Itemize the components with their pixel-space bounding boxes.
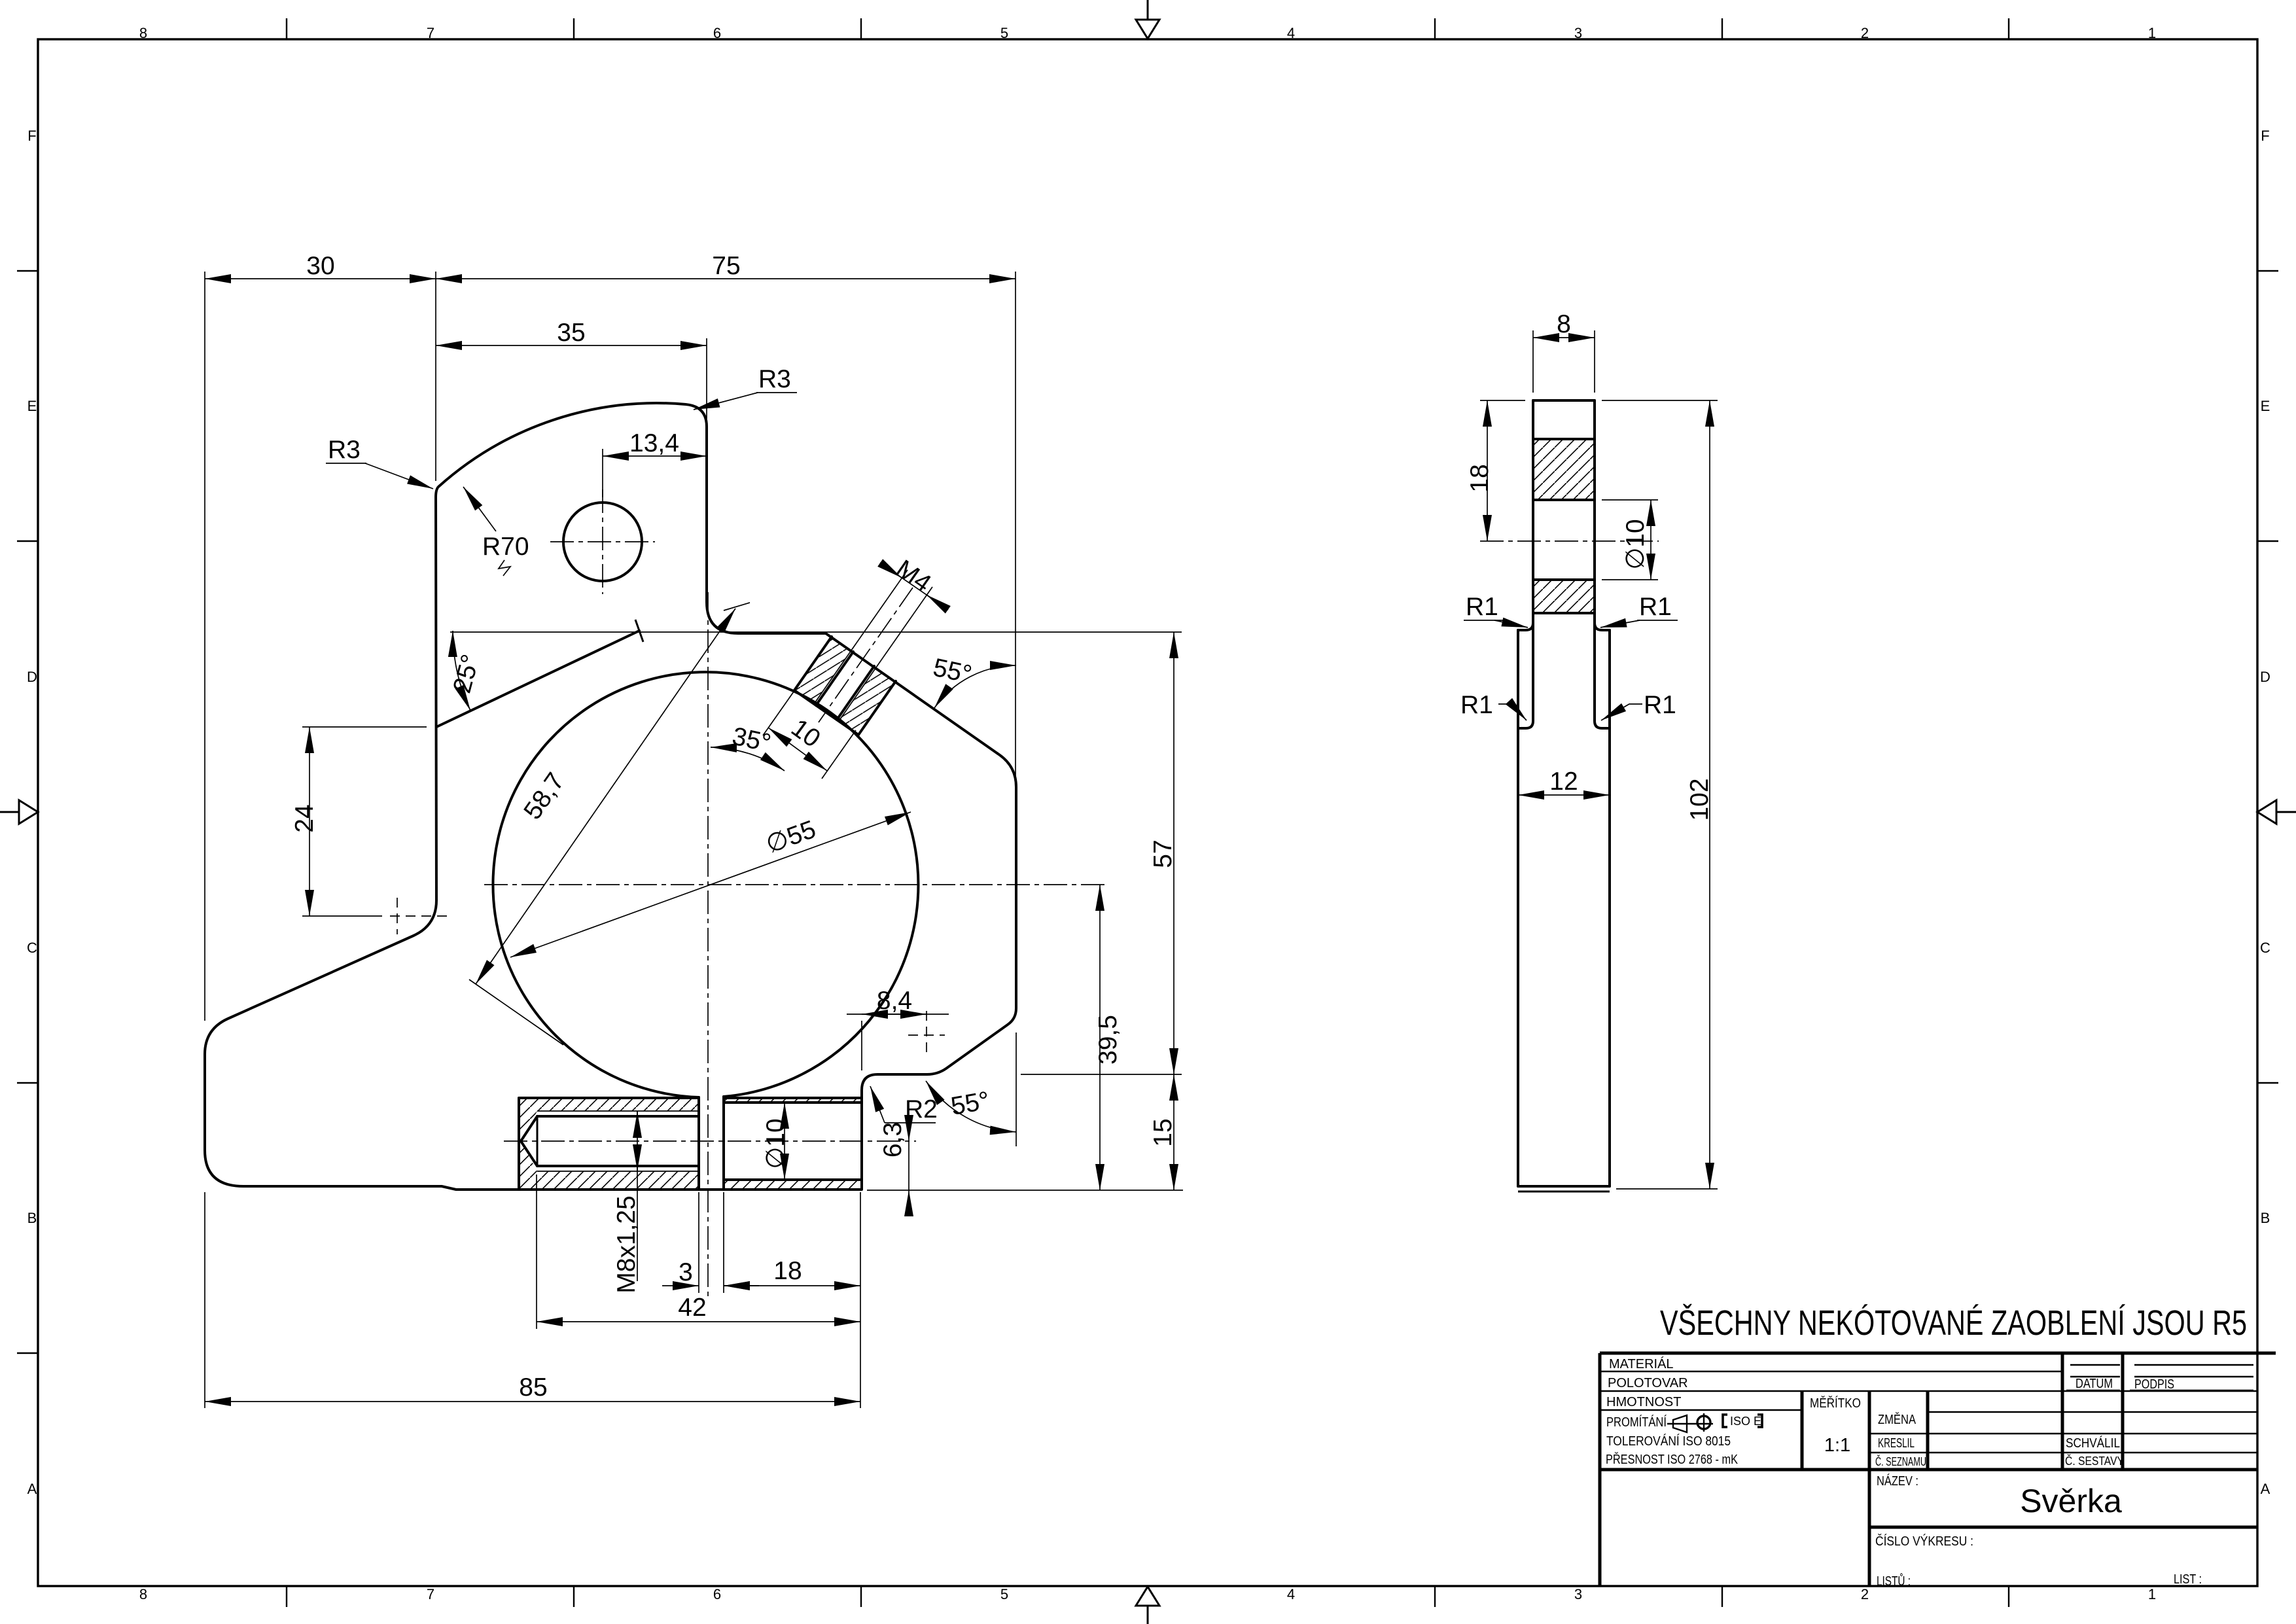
svg-text:ISO E: ISO E xyxy=(1730,1415,1761,1428)
svg-text:6: 6 xyxy=(713,1586,721,1602)
svg-text:A: A xyxy=(2261,1481,2270,1497)
svg-text:8: 8 xyxy=(1557,310,1571,338)
svg-text:2: 2 xyxy=(1861,1586,1869,1602)
svg-text:75: 75 xyxy=(712,252,740,280)
svg-text:B: B xyxy=(2261,1210,2270,1226)
svg-text:TOLEROVÁNÍ ISO 8015: TOLEROVÁNÍ ISO 8015 xyxy=(1606,1434,1731,1449)
svg-text:DATUM: DATUM xyxy=(2075,1377,2113,1391)
svg-text:102: 102 xyxy=(1686,778,1714,821)
svg-text:∅10: ∅10 xyxy=(1621,519,1650,569)
svg-text:42: 42 xyxy=(678,1294,706,1322)
svg-text:1: 1 xyxy=(2148,25,2156,41)
svg-text:MATERIÁL: MATERIÁL xyxy=(1609,1356,1674,1371)
svg-text:ČÍSLO VÝKRESU :: ČÍSLO VÝKRESU : xyxy=(1875,1534,1973,1549)
svg-text:B: B xyxy=(27,1210,37,1226)
svg-text:3: 3 xyxy=(1574,1586,1582,1602)
svg-text:LISTŮ :: LISTŮ : xyxy=(1877,1573,1911,1589)
svg-text:VŠECHNY NEKÓTOVANÉ ZAOBLENÍ JS: VŠECHNY NEKÓTOVANÉ ZAOBLENÍ JSOU R5 xyxy=(1660,1303,2247,1343)
svg-text:6: 6 xyxy=(713,25,721,41)
svg-text:SCHVÁLIL: SCHVÁLIL xyxy=(2066,1436,2120,1451)
svg-text:D: D xyxy=(27,669,37,685)
svg-text:R1: R1 xyxy=(1644,691,1676,719)
svg-text:POLOTOVAR: POLOTOVAR xyxy=(1608,1376,1688,1390)
svg-text:35: 35 xyxy=(557,319,585,347)
svg-text:ZMĚNA: ZMĚNA xyxy=(1878,1412,1916,1427)
svg-text:18: 18 xyxy=(1466,464,1494,492)
svg-text:5: 5 xyxy=(1000,1586,1008,1602)
svg-text:M8x1,25: M8x1,25 xyxy=(612,1195,641,1294)
svg-text:Č. SESTAVY: Č. SESTAVY xyxy=(2065,1454,2124,1468)
svg-text:30: 30 xyxy=(306,252,334,280)
svg-text:3: 3 xyxy=(1574,25,1582,41)
svg-text:6,3: 6,3 xyxy=(879,1122,907,1157)
svg-text:MĚŘÍTKO: MĚŘÍTKO xyxy=(1810,1396,1861,1411)
svg-text:4: 4 xyxy=(1287,25,1295,41)
svg-text:1: 1 xyxy=(2148,1586,2156,1602)
svg-text:R1: R1 xyxy=(1460,691,1493,719)
svg-text:E: E xyxy=(27,398,37,414)
svg-text:8: 8 xyxy=(139,25,147,41)
svg-text:LIST :: LIST : xyxy=(2174,1572,2202,1587)
svg-text:18: 18 xyxy=(773,1257,802,1285)
svg-text:12: 12 xyxy=(1549,768,1578,796)
svg-text:7: 7 xyxy=(427,1586,434,1602)
svg-text:R1: R1 xyxy=(1466,593,1498,621)
svg-text:R1: R1 xyxy=(1639,593,1672,621)
svg-text:NÁZEV :: NÁZEV : xyxy=(1877,1474,1918,1489)
svg-text:57: 57 xyxy=(1149,839,1177,868)
svg-text:13,4: 13,4 xyxy=(629,429,679,457)
svg-text:KRESLIL: KRESLIL xyxy=(1878,1436,1915,1451)
svg-text:E: E xyxy=(2261,398,2270,414)
svg-text:4: 4 xyxy=(1287,1586,1295,1602)
svg-text:PROMÍTÁNÍ: PROMÍTÁNÍ xyxy=(1606,1415,1667,1430)
svg-text:R2: R2 xyxy=(905,1095,938,1123)
svg-text:C: C xyxy=(27,940,37,956)
svg-text:D: D xyxy=(2260,669,2270,685)
svg-text:15: 15 xyxy=(1149,1118,1177,1146)
svg-text:8: 8 xyxy=(139,1586,147,1602)
svg-text:85: 85 xyxy=(519,1373,547,1402)
svg-text:C: C xyxy=(2260,940,2270,956)
svg-text:F: F xyxy=(27,128,36,144)
svg-text:8,4: 8,4 xyxy=(877,987,912,1015)
svg-text:PODPIS: PODPIS xyxy=(2134,1377,2174,1392)
svg-text:F: F xyxy=(2261,128,2269,144)
svg-text:HMOTNOST: HMOTNOST xyxy=(1606,1395,1681,1409)
svg-text:2: 2 xyxy=(1861,25,1869,41)
svg-text:7: 7 xyxy=(427,25,434,41)
svg-text:R3: R3 xyxy=(758,365,791,393)
svg-text:Č. SEZNAMU: Č. SEZNAMU xyxy=(1875,1455,1926,1468)
svg-text:R3: R3 xyxy=(328,436,361,464)
svg-text:A: A xyxy=(27,1481,37,1497)
svg-text:PŘESNOST ISO 2768 - mK: PŘESNOST ISO 2768 - mK xyxy=(1606,1452,1739,1467)
svg-text:3: 3 xyxy=(679,1258,693,1286)
svg-text:Svěrka: Svěrka xyxy=(2020,1483,2122,1519)
svg-text:R70: R70 xyxy=(482,533,529,561)
svg-text:∅10: ∅10 xyxy=(762,1118,790,1169)
svg-text:24: 24 xyxy=(291,804,319,832)
svg-text:5: 5 xyxy=(1000,25,1008,41)
svg-text:39,5: 39,5 xyxy=(1094,1015,1122,1065)
svg-text:1:1: 1:1 xyxy=(1824,1435,1850,1456)
